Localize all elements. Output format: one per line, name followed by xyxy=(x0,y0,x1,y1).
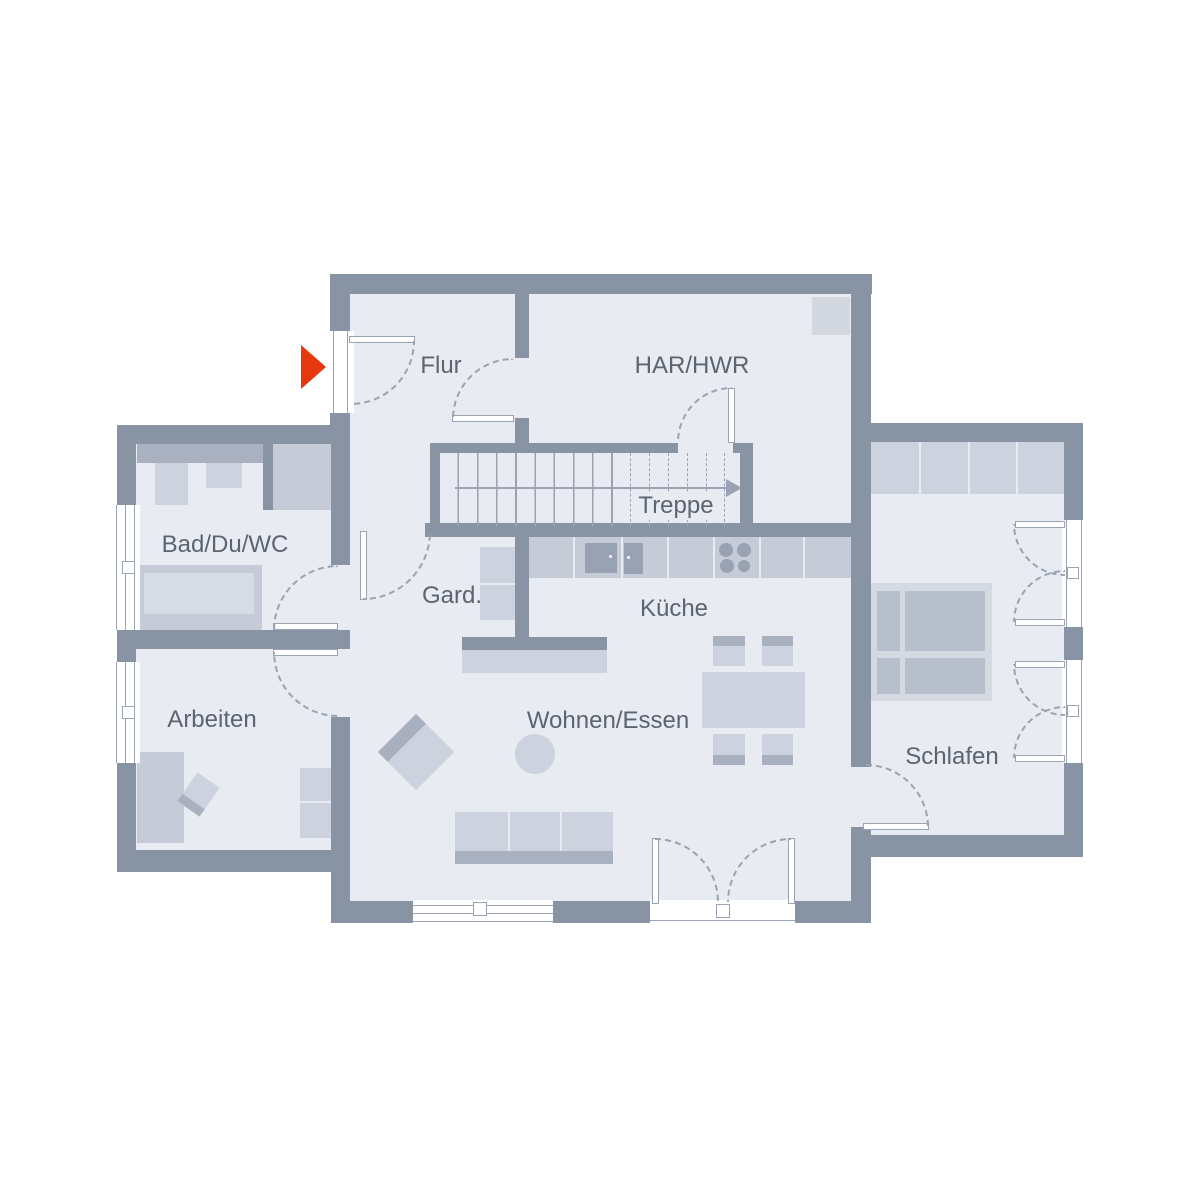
kitchen-counter-divider xyxy=(667,535,669,578)
bedroom-fw1-handle xyxy=(1067,567,1079,579)
bed-pillow xyxy=(877,591,900,651)
wall-right-outer xyxy=(1064,442,1083,857)
shower-partition-wall xyxy=(263,443,273,510)
kitchen-counter-divider xyxy=(803,535,805,578)
bed-mattress xyxy=(905,591,985,651)
wall-top-wing-top xyxy=(330,274,872,294)
washbasin xyxy=(155,463,188,505)
room-label-har-hwr: HAR/HWR xyxy=(635,352,750,380)
room-label-flur: Flur xyxy=(420,352,461,380)
office-window-frame xyxy=(116,662,117,763)
cooktop-burner xyxy=(737,543,751,557)
bath-window-mullion xyxy=(122,561,135,574)
bed-mattress xyxy=(905,658,985,694)
bedroom-french-window-1-frame xyxy=(1081,520,1082,627)
living-window-mullion xyxy=(473,902,487,916)
kitchen-island-counter xyxy=(462,650,607,673)
wall-gard-vertical xyxy=(515,537,529,638)
bathtub-inner xyxy=(144,573,254,614)
dining-chair xyxy=(762,734,793,765)
room-label-wohnen-essen: Wohnen/Essen xyxy=(527,707,689,735)
floor-plan: Flur HAR/HWR Treppe Bad/Du/WC Gard. Küch… xyxy=(0,0,1200,1200)
entrance-arrow-icon xyxy=(301,345,326,389)
office-window-mullion xyxy=(122,706,135,719)
office-desk xyxy=(137,752,184,843)
office-cabinet-divider xyxy=(300,801,332,803)
wall-center-right xyxy=(851,423,871,767)
wall-bedroom-bottom xyxy=(851,835,1083,857)
bath-window-frame xyxy=(116,505,117,630)
fridge xyxy=(585,543,617,573)
wardrobe-divider xyxy=(919,442,921,494)
wall-bedroom-top xyxy=(851,423,1083,442)
wall-top-wing-right xyxy=(851,294,871,442)
wc xyxy=(206,463,242,488)
stairs-step-dashed xyxy=(630,453,631,527)
room-label-arbeiten: Arbeiten xyxy=(167,706,256,734)
dining-chair xyxy=(713,636,745,666)
kitchen-counter-divider xyxy=(759,535,761,578)
wall-flur-har-divider xyxy=(515,294,529,358)
wall-stairs-top xyxy=(430,443,678,453)
wall-hall-office xyxy=(331,717,350,902)
entrance-door-frame xyxy=(327,331,354,413)
stairs-direction-line xyxy=(455,487,726,489)
wall-left-wing-top xyxy=(117,425,350,444)
room-label-schlafen: Schlafen xyxy=(905,743,998,771)
oven-dot xyxy=(627,556,630,559)
terrace-door-mullion xyxy=(716,904,730,918)
kitchen-counter-divider xyxy=(573,535,575,578)
bedroom-fw2-handle xyxy=(1067,705,1079,717)
wall-stairs-top-stub xyxy=(733,443,753,453)
wardrobe-divider xyxy=(1016,442,1018,494)
wardrobe-divider xyxy=(968,442,970,494)
washer xyxy=(812,297,850,335)
dining-chair xyxy=(762,636,793,666)
terrace-door-sill-line xyxy=(650,920,795,921)
stairs-steps-solid xyxy=(440,453,613,527)
sofa-back xyxy=(455,812,613,851)
room-label-kueche: Küche xyxy=(640,595,708,623)
room-label-bad: Bad/Du/WC xyxy=(162,531,289,559)
sofa-seat xyxy=(455,851,613,864)
cooktop-burner xyxy=(738,560,750,572)
wall-bath-office-divider xyxy=(130,630,350,649)
dining-table xyxy=(702,672,805,728)
sofa-divider xyxy=(560,812,562,851)
dining-chair-back xyxy=(713,636,745,646)
cooktop-burner xyxy=(720,559,734,573)
office-cabinet xyxy=(300,768,332,838)
dining-chair-back xyxy=(762,755,793,765)
stairs-direction-arrowhead xyxy=(726,479,742,497)
dining-chair-back xyxy=(762,636,793,646)
room-label-gard: Gard. xyxy=(422,582,482,610)
entrance-door-frame-line xyxy=(333,331,334,413)
bed-pillow xyxy=(877,658,900,694)
gard-closet-lower xyxy=(480,585,517,620)
side-table-round xyxy=(515,734,555,774)
fridge-handle-dot xyxy=(609,555,612,558)
wall-stairs-left xyxy=(430,453,440,527)
shower xyxy=(273,444,337,510)
kitchen-island-wall xyxy=(462,637,607,650)
kitchen-counter-divider xyxy=(621,535,623,578)
wall-flur-har-stub xyxy=(515,418,529,443)
sofa-divider xyxy=(508,812,510,851)
gard-closet-upper xyxy=(480,547,517,583)
stairs-step-dashed xyxy=(724,453,725,527)
cooktop-burner xyxy=(719,543,733,557)
kitchen-counter-divider xyxy=(713,535,715,578)
wall-left-wing-bottom xyxy=(117,850,350,872)
dining-chair-back xyxy=(713,755,745,765)
dining-chair xyxy=(713,734,745,765)
room-label-treppe: Treppe xyxy=(635,492,716,520)
entrance-door-frame-line xyxy=(347,331,348,413)
bath-counter xyxy=(137,444,263,463)
wall-hall-bath xyxy=(331,425,350,565)
bedroom-french-window-2-frame xyxy=(1081,660,1082,763)
living-window-frame xyxy=(413,921,553,922)
